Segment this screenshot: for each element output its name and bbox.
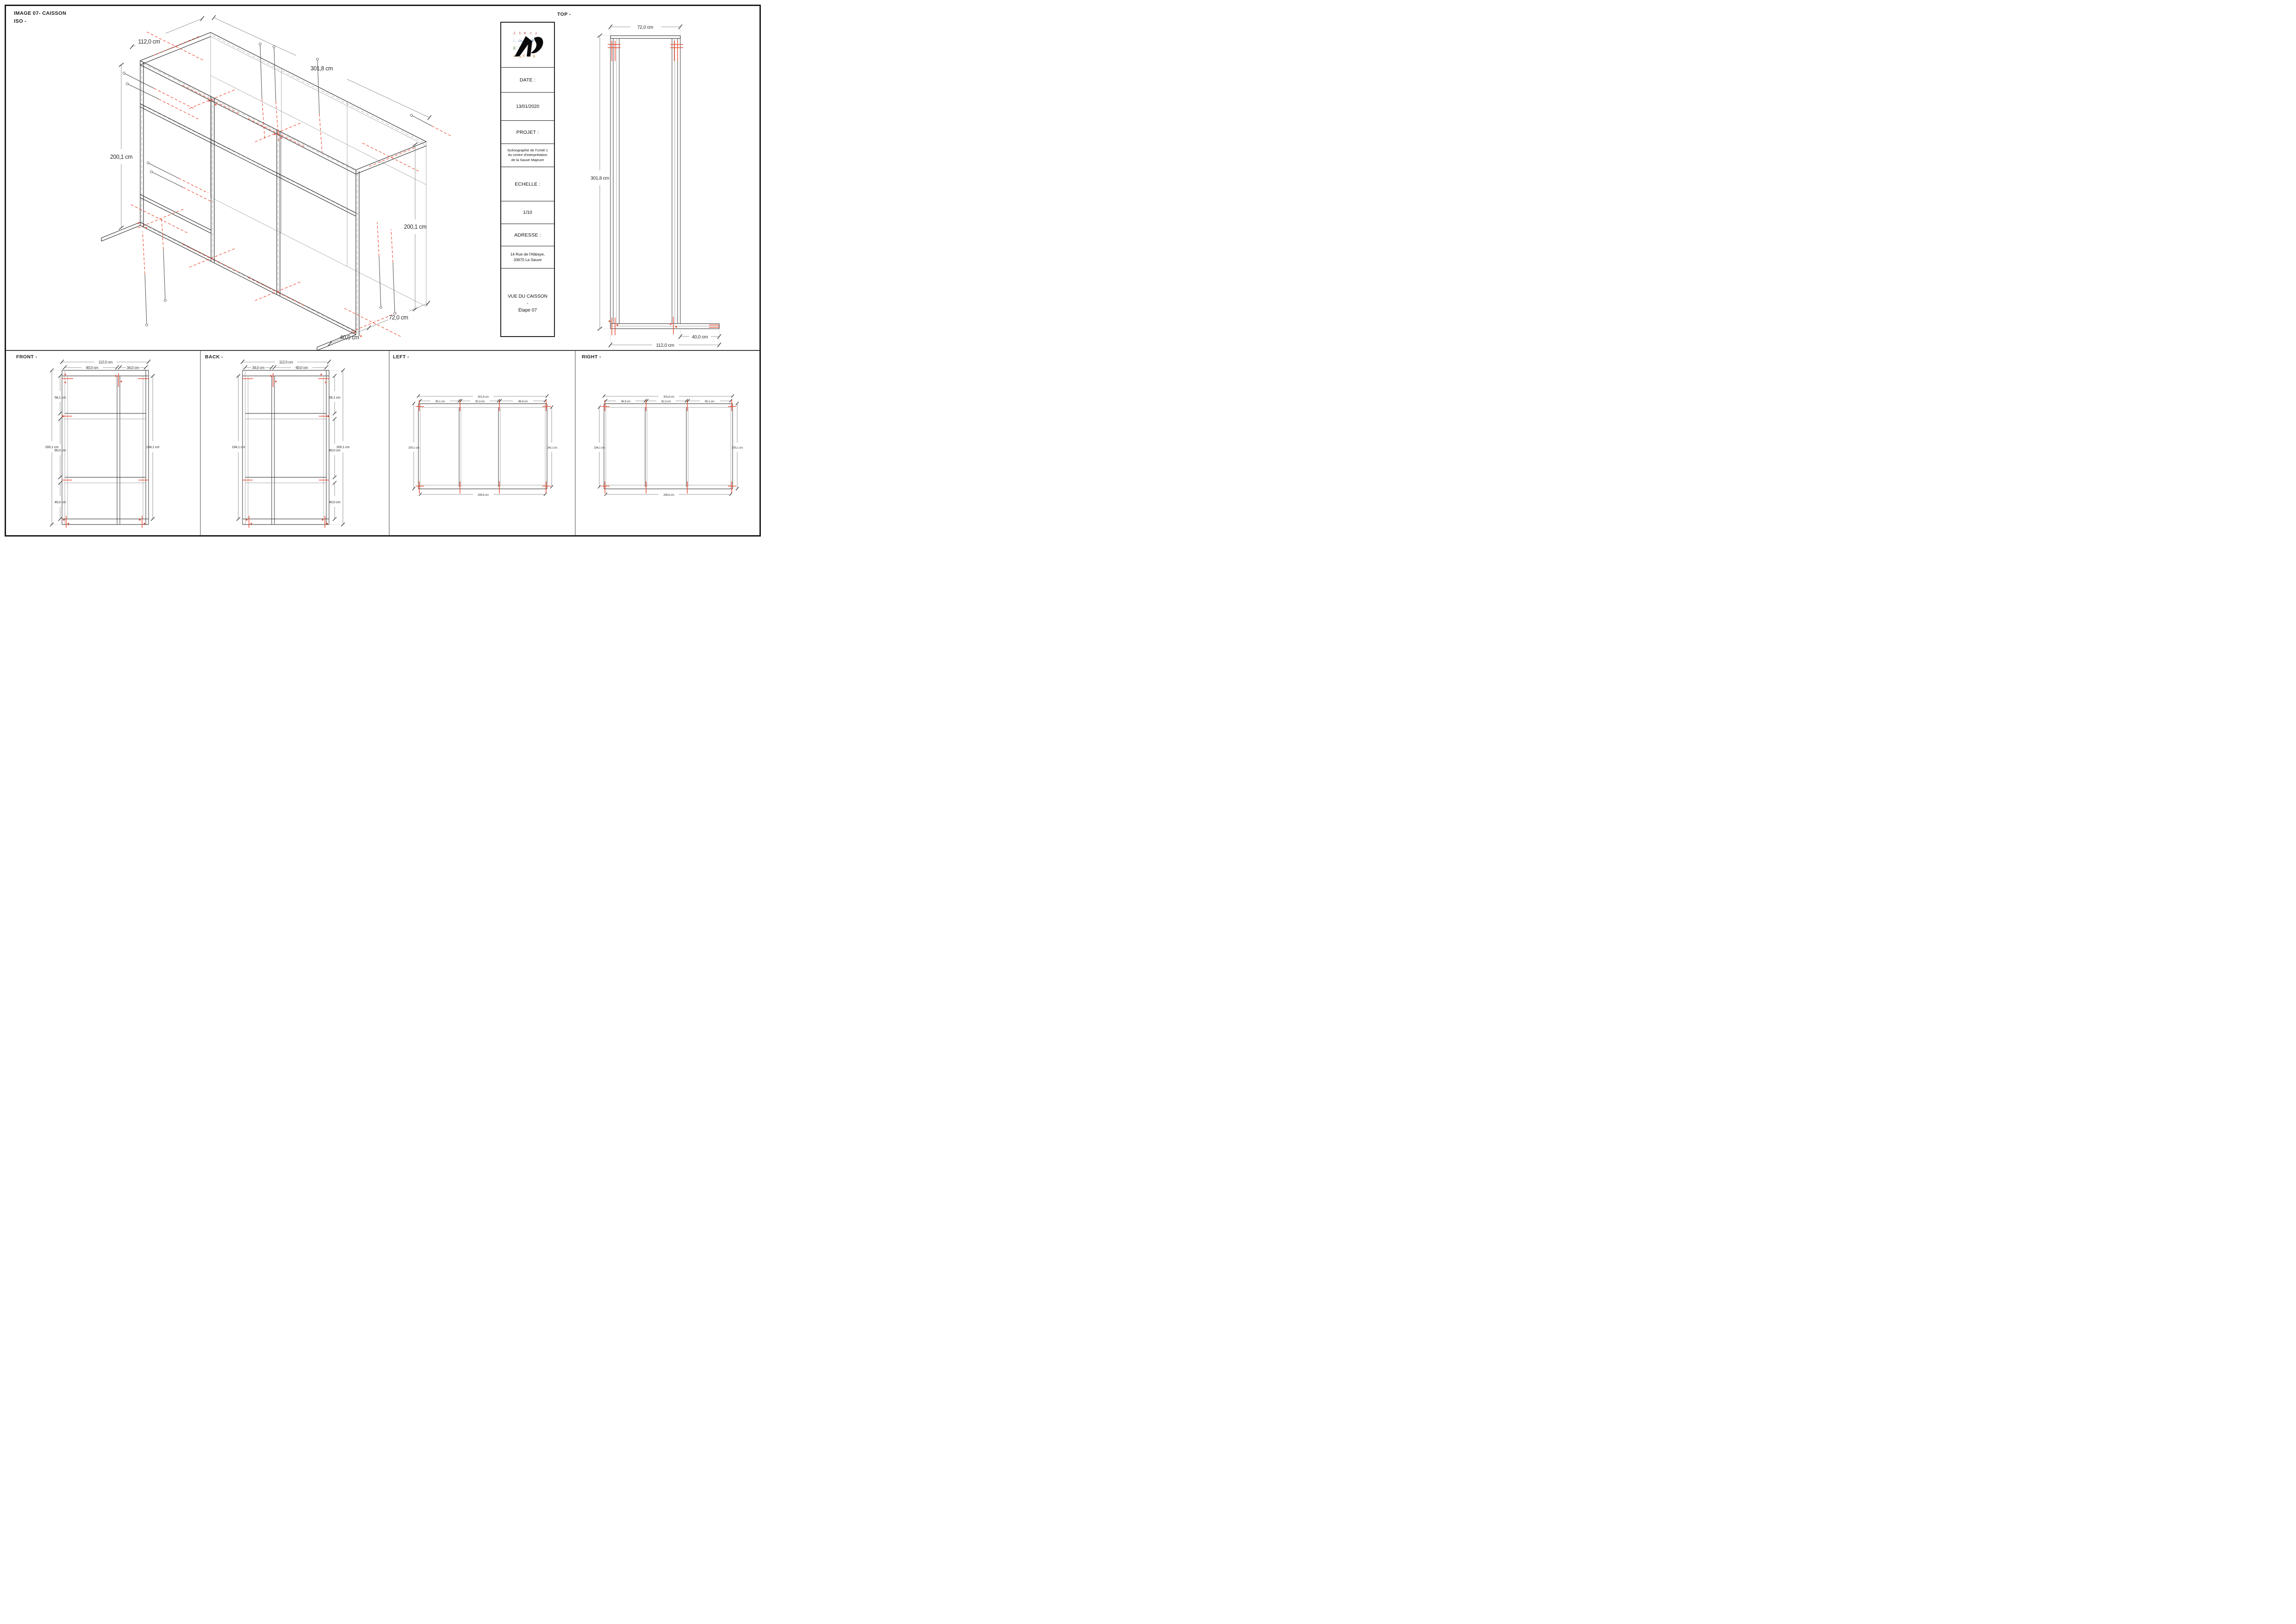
right-dim-inner-height: 194,1 cm	[594, 446, 605, 450]
back-dimensions: 112,0 cm 34,0 cm 60,0 cm 194,1 cm 56,1 c…	[232, 360, 350, 526]
top-dim-total-width: 112,0 cm	[656, 343, 674, 348]
iso-dimensions: 112,0 cm 301,8 cm 200,1 cm 200,1 cm 72,0…	[110, 15, 431, 346]
iso-dim-foot: 40,0 cm	[340, 334, 359, 341]
right-view-label: RIGHT -	[582, 354, 601, 360]
project-label: PROJET :	[516, 130, 539, 135]
date-value-cell: 13/01/2020	[501, 93, 554, 121]
right-dim-height: 200,1 cm	[732, 446, 743, 450]
front-frame	[62, 370, 149, 525]
front-dimensions: 112,0 cm 60,0 cm 34,0 cm 200,1 cm 56,1 c…	[45, 360, 160, 526]
top-screw-marks	[608, 41, 719, 335]
scale-label: ECHELLE :	[515, 181, 541, 187]
project-line1: Scénographie de l'Unité 1	[507, 148, 548, 153]
right-dim-seg3: 95,1 cm	[705, 400, 714, 403]
top-frame	[610, 36, 719, 329]
iso-dim-width: 112,0 cm	[138, 38, 160, 45]
right-view: 301,8 cm 96,9 cm 92,3 cm 95,1 cm 194,1 c…	[594, 394, 743, 497]
right-frame	[604, 404, 733, 489]
address-line2: 33670 La Sauve	[514, 257, 541, 263]
left-dim-height: 200,1 cm	[408, 446, 419, 450]
left-screw-marks	[416, 400, 551, 493]
left-dim-length: 301,8 cm	[478, 395, 489, 399]
sheet-title: IMAGE 07- CAISSON	[14, 10, 66, 18]
address-line1: 14 Rue de l'Abbaye,	[510, 252, 545, 257]
top-view-label: TOP -	[557, 12, 571, 17]
sheet-subtitle: ISO -	[14, 18, 66, 25]
iso-wood-texture	[142, 36, 424, 333]
back-dim-bay-left: 34,0 cm	[252, 366, 265, 370]
iso-posts	[140, 61, 359, 336]
right-dim-seg2: 92,3 cm	[661, 400, 671, 403]
iso-dim-height-left: 200,1 cm	[110, 154, 132, 160]
view-title-cell: VUE DU CAISSON - Étape 07	[501, 269, 554, 338]
iso-dim-depth: 72,0 cm	[389, 314, 408, 321]
view-title-sep: -	[527, 300, 528, 307]
date-label: DATE :	[520, 77, 535, 83]
iso-dim-height-right: 200,1 cm	[404, 224, 426, 230]
top-dim-foot: 40,0 cm	[692, 334, 708, 340]
right-screw-marks	[601, 400, 736, 493]
project-line2: du centre d'interprétation	[508, 153, 548, 157]
back-dim-seg-top: 56,1 cm	[329, 395, 341, 400]
back-dim-seg-bottom: 40,0 cm	[329, 500, 341, 504]
title-block-logo-cell: 人 Σ Ҝ イ y ஃ ௸ U # 辵 क ♡ キ ق Ⴟ ৬ ⵣ	[501, 23, 554, 68]
scale-value-cell: 1/10	[501, 201, 554, 224]
front-dim-total: 112,0 cm	[99, 360, 113, 364]
back-frame	[243, 370, 329, 525]
project-label-cell: PROJET :	[501, 121, 554, 144]
view-title-step: Étape 07	[518, 307, 537, 314]
left-dim-seg1: 95,1 cm	[436, 400, 445, 403]
front-dim-bay-right: 34,0 cm	[127, 366, 139, 370]
top-dim-length: 301,8 cm	[591, 175, 610, 181]
top-dimensions: 72,0 cm 301,8 cm 40,0 cm 112,0 cm	[591, 25, 721, 348]
project-line3: de la Sauve Majeure	[511, 158, 544, 162]
agency-logo-icon: 人 Σ Ҝ イ y ஃ ௸ U # 辵 क ♡ キ ق Ⴟ ৬ ⵣ	[508, 28, 547, 62]
right-dim-bottom: 295,8 cm	[663, 493, 674, 497]
front-screw-marks	[62, 373, 149, 528]
top-dim-width: 72,0 cm	[637, 25, 653, 30]
view-title: VUE DU CAISSON	[508, 293, 548, 300]
left-dim-inner-height: 194,1 cm	[546, 446, 557, 450]
iso-mid-rail	[140, 104, 356, 216]
scale-value: 1/10	[523, 210, 532, 215]
front-view: 112,0 cm 60,0 cm 34,0 cm 200,1 cm 56,1 c…	[45, 360, 160, 528]
iso-view: 112,0 cm 301,8 cm 200,1 cm 200,1 cm 72,0…	[101, 15, 451, 350]
scale-label-cell: ECHELLE :	[501, 167, 554, 201]
top-view: 72,0 cm 301,8 cm 40,0 cm 112,0 cm	[591, 25, 721, 348]
front-dim-inner-height: 194,1 cm	[146, 445, 160, 449]
front-dim-seg-mid: 80,0 cm	[55, 448, 66, 452]
left-view: 301,8 cm 95,1 cm 92,3 cm 96,9 cm 200,1 c…	[408, 394, 557, 497]
back-dim-total: 112,0 cm	[279, 360, 293, 364]
iso-dim-length: 301,8 cm	[311, 65, 333, 72]
drawing-sheet: { "page": { "header_line1": "IMAGE 07- C…	[0, 0, 765, 541]
left-dim-seg2: 92,3 cm	[475, 400, 485, 403]
left-dim-seg3: 96,9 cm	[518, 400, 528, 403]
left-frame	[418, 404, 547, 489]
front-dim-bay-left: 60,0 cm	[86, 366, 99, 370]
project-value-cell: Scénographie de l'Unité 1 du centre d'in…	[501, 144, 554, 167]
drawing-canvas: 112,0 cm 301,8 cm 200,1 cm 200,1 cm 72,0…	[0, 0, 765, 541]
address-label: ADRESSE :	[514, 232, 541, 238]
right-dim-length: 301,8 cm	[663, 395, 674, 399]
left-view-label: LEFT -	[393, 354, 409, 360]
front-dim-seg-top: 56,1 cm	[55, 395, 66, 400]
right-dim-seg1: 96,9 cm	[621, 400, 630, 403]
iso-bottom-rail	[140, 222, 356, 335]
left-dim-bottom: 295,8 cm	[478, 493, 489, 497]
iso-screws	[123, 43, 451, 337]
back-dim-bay-right: 60,0 cm	[296, 366, 308, 370]
address-value-cell: 14 Rue de l'Abbaye, 33670 La Sauve	[501, 246, 554, 269]
sheet-header: IMAGE 07- CAISSON ISO -	[14, 10, 66, 25]
back-screw-marks	[242, 373, 330, 528]
front-view-label: FRONT -	[16, 354, 37, 360]
back-dim-seg-mid: 80,0 cm	[329, 448, 341, 452]
date-value: 13/01/2020	[516, 104, 539, 109]
date-label-cell: DATE :	[501, 68, 554, 93]
back-view: 112,0 cm 34,0 cm 60,0 cm 194,1 cm 56,1 c…	[232, 360, 350, 528]
left-dimensions: 301,8 cm 95,1 cm 92,3 cm 96,9 cm 200,1 c…	[408, 394, 557, 497]
logo-glyph-row: 人 Σ Ҝ イ y	[513, 31, 538, 35]
iso-back-members	[211, 32, 426, 306]
back-dim-inner-height: 194,1 cm	[232, 445, 245, 449]
front-dim-seg-bottom: 40,0 cm	[55, 500, 66, 504]
back-view-label: BACK -	[205, 354, 223, 360]
address-label-cell: ADRESSE :	[501, 224, 554, 246]
title-block: 人 Σ Ҝ イ y ஃ ௸ U # 辵 क ♡ キ ق Ⴟ ৬ ⵣ DATE :…	[500, 22, 555, 337]
iso-feet	[101, 222, 356, 350]
right-dimensions: 301,8 cm 96,9 cm 92,3 cm 95,1 cm 194,1 c…	[594, 394, 743, 497]
